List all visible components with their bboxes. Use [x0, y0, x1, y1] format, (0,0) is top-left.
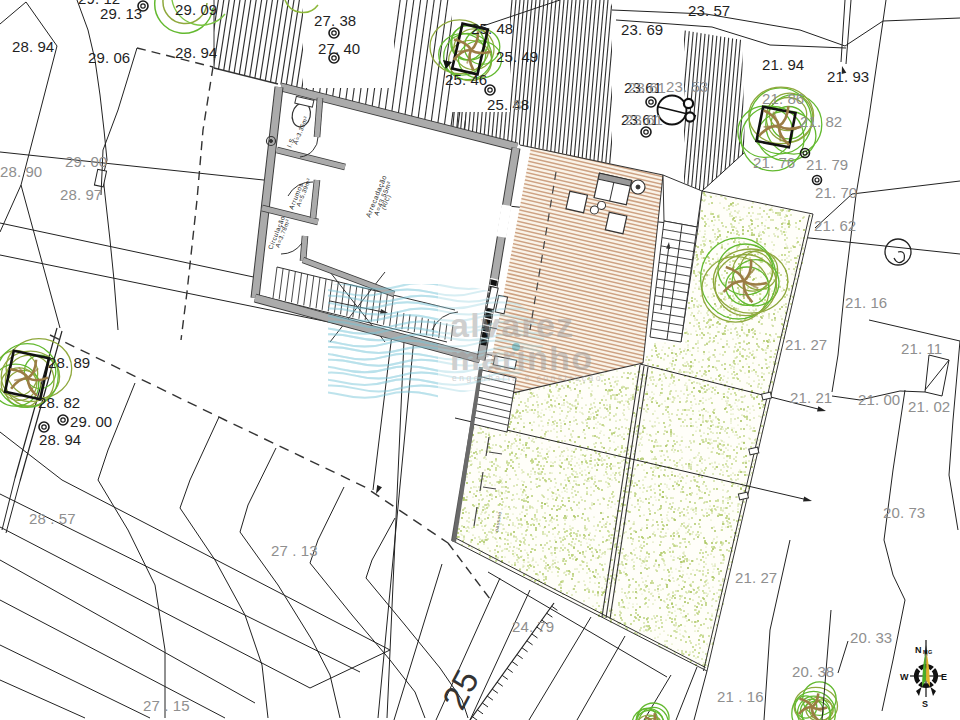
svg-text:27. 40: 27. 40 [318, 40, 360, 57]
svg-text:21. 94: 21. 94 [762, 56, 804, 73]
svg-text:29. 13: 29. 13 [100, 5, 142, 22]
svg-text:21. 62: 21. 62 [814, 217, 856, 234]
svg-text:N: N [915, 645, 922, 655]
svg-text:28. 82: 28. 82 [38, 394, 80, 411]
svg-text:23.61: 23.61 [625, 111, 663, 128]
svg-text:21. 11: 21. 11 [901, 340, 942, 357]
svg-text:28. 89: 28. 89 [48, 354, 90, 371]
svg-text:29. 00: 29. 00 [65, 153, 107, 170]
svg-text:21. 27: 21. 27 [735, 569, 777, 586]
svg-text:25. 48: 25. 48 [487, 96, 529, 113]
svg-text:29. 09: 29. 09 [175, 1, 217, 18]
svg-text:21. 93: 21. 93 [827, 68, 869, 85]
svg-text:27 . 13: 27 . 13 [271, 542, 318, 559]
svg-text:23.61: 23.61 [628, 79, 666, 96]
svg-text:27. 38: 27. 38 [314, 12, 356, 29]
svg-text:23. 53: 23. 53 [666, 78, 708, 95]
svg-text:23. 57: 23. 57 [688, 2, 730, 19]
svg-text:21. 27: 21. 27 [785, 336, 827, 353]
svg-text:21 . 16: 21 . 16 [717, 688, 764, 705]
svg-text:21. 79: 21. 79 [806, 156, 848, 173]
svg-text:S: S [922, 699, 929, 709]
svg-text:21. 21: 21. 21 [790, 389, 832, 406]
svg-text:27 . 15: 27 . 15 [143, 697, 190, 714]
svg-text:28. 90: 28. 90 [0, 163, 42, 180]
svg-text:25. 48: 25. 48 [471, 20, 513, 37]
svg-text:21. 86: 21. 86 [762, 90, 804, 107]
svg-text:21. 82: 21. 82 [800, 113, 842, 130]
svg-text:29. 00: 29. 00 [70, 413, 112, 430]
svg-text:21. 70: 21. 70 [815, 184, 857, 201]
svg-text:28. 97: 28. 97 [60, 186, 102, 203]
svg-text:21. 76: 21. 76 [753, 154, 795, 171]
svg-text:MG: MG [923, 649, 933, 655]
svg-text:20. 33: 20. 33 [850, 629, 892, 646]
svg-text:20. 73: 20. 73 [883, 504, 925, 521]
svg-text:28. 94: 28. 94 [175, 44, 217, 61]
svg-text:23. 69: 23. 69 [621, 21, 663, 38]
svg-text:25. 46: 25. 46 [445, 71, 487, 88]
svg-text:engenharia e construção: engenharia e construção [452, 373, 603, 383]
svg-text:E: E [941, 672, 948, 682]
svg-text:28 . 57: 28 . 57 [29, 510, 76, 527]
svg-text:24. 79: 24. 79 [512, 618, 554, 635]
svg-text:28. 94: 28. 94 [12, 38, 54, 55]
svg-text:21. 16: 21. 16 [845, 294, 887, 311]
svg-text:28. 94: 28. 94 [39, 431, 81, 448]
svg-text:8: 8 [513, 96, 521, 113]
svg-text:20. 38: 20. 38 [792, 663, 834, 680]
svg-text:21. 02: 21. 02 [908, 398, 950, 415]
svg-text:25. 49: 25. 49 [496, 48, 538, 65]
svg-text:marinho: marinho [450, 339, 593, 377]
svg-text:W: W [900, 672, 909, 682]
svg-text:21. 00: 21. 00 [858, 391, 900, 408]
svg-text:29. 06: 29. 06 [88, 49, 130, 66]
